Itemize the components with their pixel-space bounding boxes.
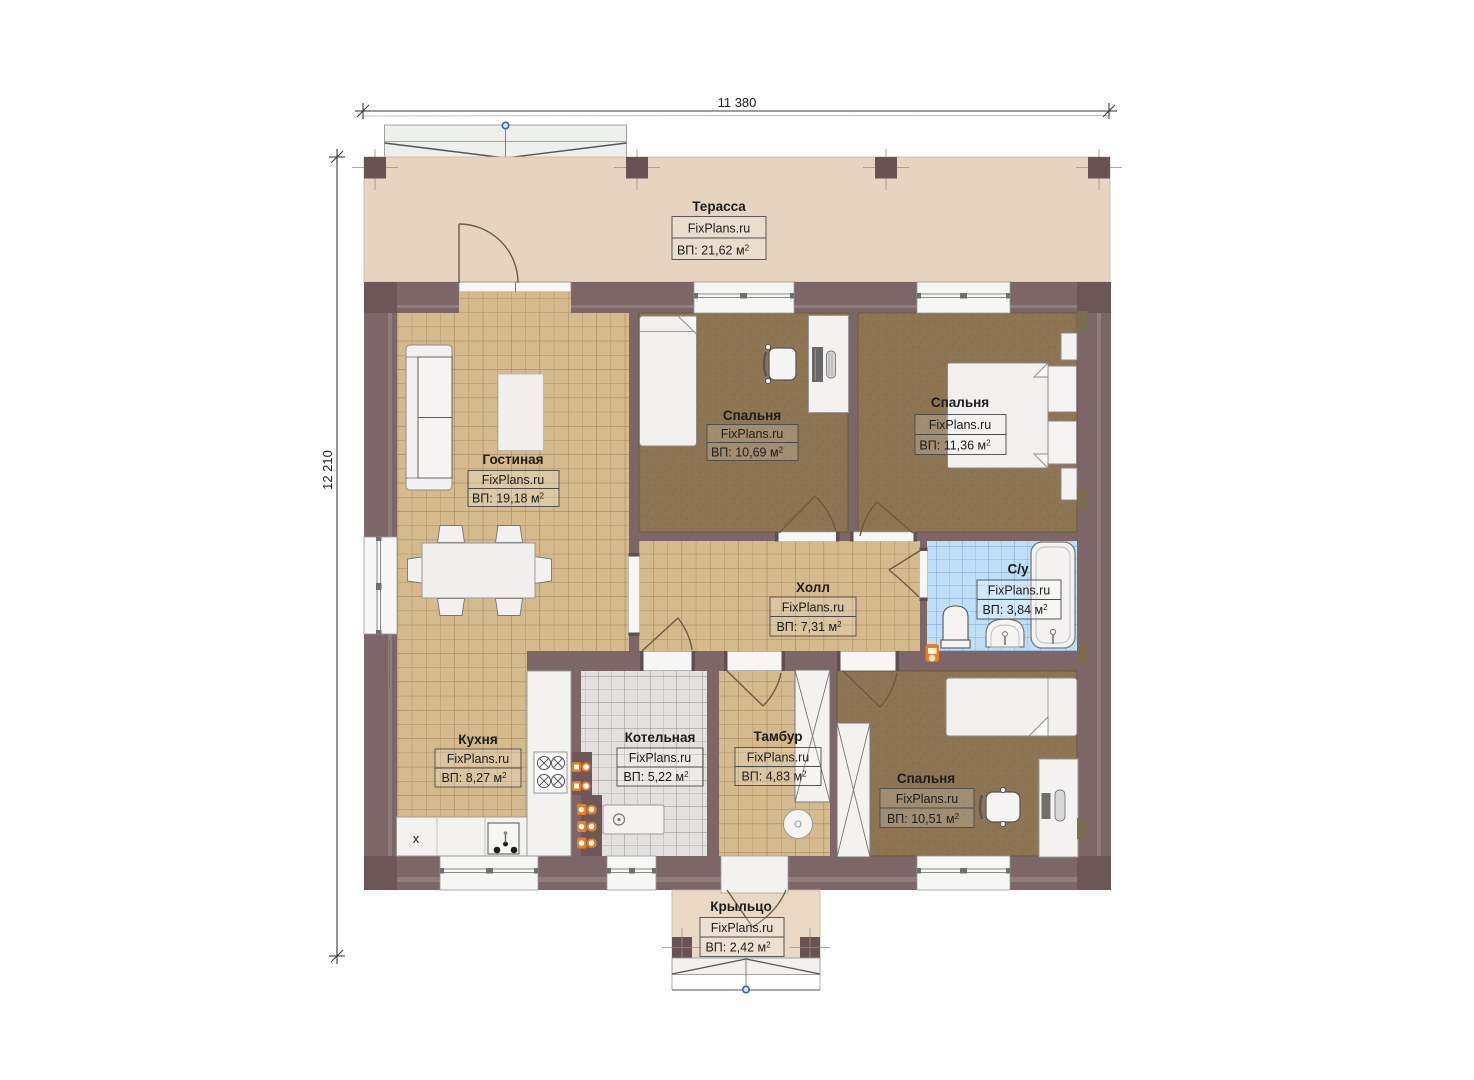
svg-text:Гостиная: Гостиная — [482, 452, 543, 467]
svg-text:ВП: 7,31 м2: ВП: 7,31 м2 — [776, 620, 842, 634]
svg-text:ВП: 4,83 м2: ВП: 4,83 м2 — [741, 770, 807, 784]
svg-text:FixPlans.ru: FixPlans.ru — [721, 427, 784, 441]
svg-text:FixPlans.ru: FixPlans.ru — [988, 584, 1051, 598]
svg-text:12 210: 12 210 — [320, 450, 335, 490]
svg-text:ВП: 10,69 м2: ВП: 10,69 м2 — [711, 446, 784, 460]
svg-text:Спальня: Спальня — [897, 771, 955, 786]
svg-text:11 380: 11 380 — [718, 95, 757, 110]
svg-text:ВП: 11,36 м2: ВП: 11,36 м2 — [919, 439, 991, 453]
svg-text:FixPlans.ru: FixPlans.ru — [688, 222, 751, 236]
svg-text:FixPlans.ru: FixPlans.ru — [711, 921, 774, 935]
svg-text:ВП: 21,62 м2: ВП: 21,62 м2 — [677, 244, 750, 258]
svg-text:FixPlans.ru: FixPlans.ru — [482, 473, 545, 487]
svg-text:Терасса: Терасса — [692, 199, 746, 214]
svg-text:ВП: 8,27 м2: ВП: 8,27 м2 — [441, 771, 507, 785]
svg-text:FixPlans.ru: FixPlans.ru — [447, 752, 510, 766]
svg-text:ВП: 2,42 м2: ВП: 2,42 м2 — [705, 941, 771, 955]
svg-text:Кухня: Кухня — [458, 732, 497, 747]
svg-text:FixPlans.ru: FixPlans.ru — [896, 792, 959, 806]
svg-text:ВП: 10,51 м2: ВП: 10,51 м2 — [887, 812, 960, 826]
svg-text:Спальня: Спальня — [931, 395, 989, 410]
svg-text:С/у: С/у — [1007, 562, 1029, 577]
svg-text:Котельная: Котельная — [625, 730, 696, 745]
svg-text:FixPlans.ru: FixPlans.ru — [929, 418, 992, 432]
svg-text:ВП: 19,18 м2: ВП: 19,18 м2 — [472, 492, 545, 506]
svg-text:FixPlans.ru: FixPlans.ru — [629, 751, 692, 765]
svg-text:FixPlans.ru: FixPlans.ru — [782, 601, 845, 615]
svg-text:ВП: 5,22 м2: ВП: 5,22 м2 — [623, 770, 689, 784]
svg-text:x: x — [413, 831, 420, 846]
svg-text:ВП: 3,84 м2: ВП: 3,84 м2 — [982, 603, 1048, 617]
svg-text:Холл: Холл — [796, 580, 830, 595]
svg-text:Спальня: Спальня — [723, 408, 781, 423]
svg-text:Тамбур: Тамбур — [754, 729, 803, 744]
svg-text:Крыльцо: Крыльцо — [710, 899, 771, 914]
svg-text:FixPlans.ru: FixPlans.ru — [747, 751, 810, 765]
